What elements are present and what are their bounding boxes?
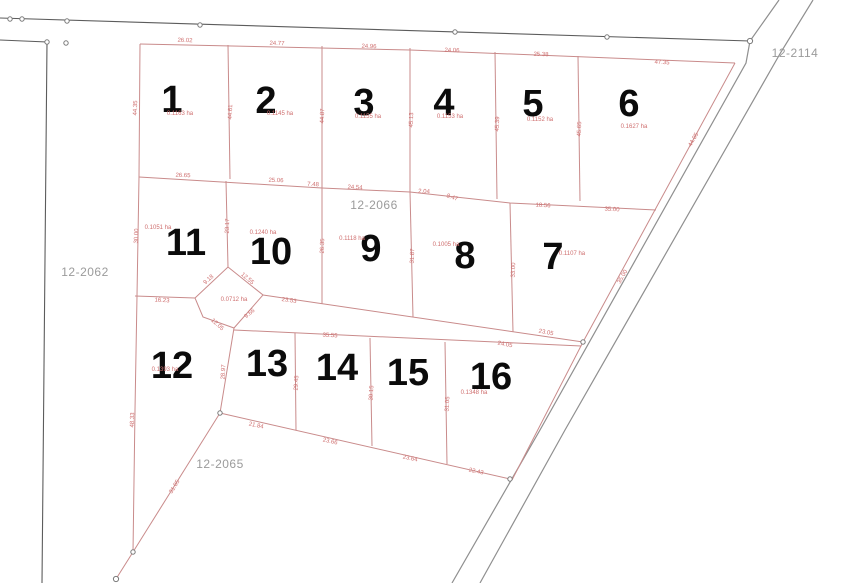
dimension-label: 31.05 [445, 396, 452, 412]
dimension-label: 22.43 [468, 468, 485, 477]
dimension-label: 26.02 [177, 38, 193, 45]
dimension-label: 33.00 [511, 262, 518, 278]
lot-number: 9 [360, 228, 381, 270]
survey-point [453, 30, 457, 34]
lot-number: 11 [166, 222, 206, 264]
dimension-label: 35.00 [617, 268, 630, 285]
dimension-label: 23.66 [322, 438, 339, 447]
access-lane-north-edge [263, 295, 583, 342]
dimension-label: 48.33 [130, 412, 137, 428]
dimension-label: 26.35 [320, 238, 327, 254]
dimension-label: 45.39 [495, 116, 502, 132]
dimension-label: 23.17 [225, 218, 232, 234]
dimension-label: 35.00 [604, 207, 620, 214]
survey-point [113, 576, 118, 581]
subdivision-west-edge [116, 44, 140, 579]
north-road-line [0, 18, 750, 41]
lot-area-label: 0.1051 ha [145, 225, 172, 231]
dimension-label: 44.61 [228, 104, 235, 120]
parcel-id-label: 12-2065 [196, 457, 244, 471]
dimension-label: 24.05 [497, 341, 513, 350]
survey-point [747, 38, 752, 43]
lot-area-label: 0.1627 ha [621, 124, 648, 130]
dimension-label: 44.35 [133, 100, 140, 116]
cadastral-plan-canvas: 10.1163 ha20.1145 ha30.1155 ha40.1153 ha… [0, 0, 864, 583]
lot-number: 10 [250, 231, 292, 273]
dimension-label: 25.38 [533, 52, 549, 59]
lot-area-label: 0.1153 ha [437, 114, 464, 120]
lot-area-label: 0.1240 ha [250, 230, 277, 236]
dimension-label: 9.66 [244, 308, 257, 321]
survey-point [581, 340, 585, 344]
dimension-label: 31.05 [168, 478, 181, 494]
dimension-label: 30.00 [134, 228, 141, 244]
dimension-label: 12.55 [239, 272, 255, 287]
west-boundary-line [0, 40, 47, 583]
dimension-label: 35.55 [322, 333, 338, 340]
lot-area-label: 0.0712 ha [221, 297, 248, 303]
dimension-label: 2.04 [418, 189, 431, 196]
survey-point [605, 35, 609, 39]
survey-point [45, 40, 49, 44]
parcel-id-label: 12-2062 [61, 265, 109, 279]
survey-point [65, 19, 69, 23]
dimension-label: 28.97 [221, 364, 228, 380]
survey-point [131, 550, 135, 554]
subdivision-north-edge [140, 44, 735, 63]
survey-point [198, 23, 202, 27]
lot-area-label: 0.1005 ha [433, 242, 460, 248]
dimension-label: 44.87 [320, 108, 327, 124]
dimension-label: 45.13 [409, 112, 416, 128]
dimension-label: 7.48 [307, 182, 320, 189]
lot-area-label: 0.1348 ha [461, 390, 488, 396]
lot-number: 15 [387, 352, 429, 394]
survey-point [20, 17, 24, 21]
survey-point [64, 41, 68, 45]
survey-markers [8, 17, 753, 582]
dimension-label: 18.56 [535, 203, 551, 210]
survey-point [508, 477, 512, 481]
survey-point [218, 411, 222, 415]
dimension-label: 44.05 [688, 131, 701, 148]
plan-labels: 10.1163 ha20.1145 ha30.1155 ha40.1153 ha… [61, 38, 818, 495]
dimension-label: 24.54 [347, 185, 363, 192]
subdivision-south-edge [220, 413, 510, 479]
dimension-label: 24.06 [444, 48, 460, 55]
dimension-label: 23.64 [402, 455, 419, 464]
lot-area-label: 0.1118 ha [339, 236, 365, 242]
dimension-label: 45.65 [577, 121, 584, 137]
lot-area-label: 0.1393 ha [152, 367, 179, 373]
parcel-id-label: 12-2066 [350, 198, 398, 212]
lot-area-label: 0.1155 ha [355, 114, 382, 120]
survey-point [8, 17, 12, 21]
lot-number: 14 [316, 347, 358, 389]
dimension-label: 30.15 [369, 385, 376, 401]
lot-number: 6 [618, 83, 639, 125]
lot-area-label: 0.1107 ha [559, 251, 586, 257]
parcel-id-label: 12-2114 [772, 46, 819, 60]
dimension-label: 24.96 [361, 44, 377, 51]
neighbor-boundaries [0, 0, 813, 583]
lot-number: 12 [151, 345, 193, 387]
dimension-label: 24.77 [269, 41, 285, 48]
dimension-label: 31.87 [410, 248, 417, 264]
dimension-label: 8.47 [445, 193, 459, 203]
cadastral-plan: 10.1163 ha20.1145 ha30.1155 ha40.1153 ha… [0, 0, 864, 583]
dimension-label: 26.65 [175, 173, 191, 180]
lot-number: 7 [542, 236, 563, 278]
dimension-label: 12.05 [209, 318, 225, 333]
dimension-label: 25.06 [268, 178, 284, 185]
dimension-label: 23.53 [281, 297, 297, 305]
lot-area-label: 0.1145 ha [267, 111, 294, 117]
lot-area-label: 0.1163 ha [167, 111, 194, 117]
lot-number: 13 [246, 343, 288, 385]
east-road-left-line [452, 0, 779, 583]
dimension-label: 29.45 [294, 375, 301, 391]
dimension-label: 47.35 [654, 60, 670, 67]
lot-area-label: 0.1152 ha [527, 117, 554, 123]
dimension-label: 16.23 [154, 298, 170, 305]
